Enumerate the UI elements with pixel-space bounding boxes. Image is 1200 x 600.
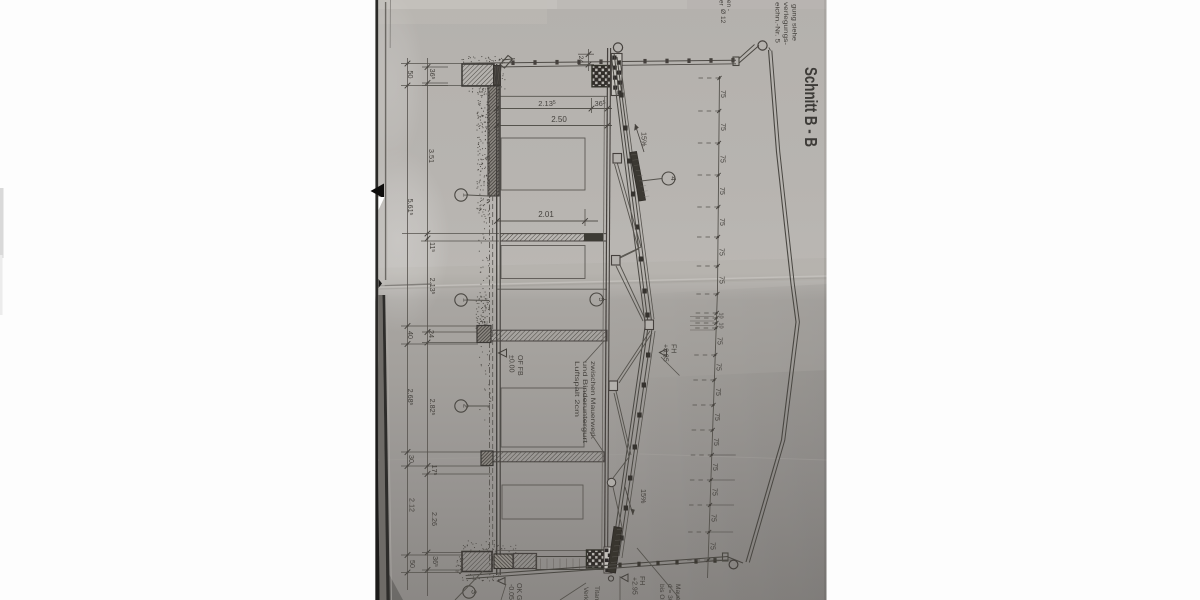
svg-text:75: 75 <box>711 463 718 471</box>
svg-text:-0.05: -0.05 <box>507 584 514 600</box>
svg-text:75: 75 <box>718 218 725 226</box>
svg-text:OF FB: OF FB <box>516 355 523 376</box>
svg-text:verlegungs-: verlegungs- <box>782 2 789 45</box>
svg-text:50: 50 <box>408 560 417 568</box>
svg-text:Luftspalt 2cm: Luftspalt 2cm <box>573 361 580 417</box>
svg-text:und Binderuntergurt: und Binderuntergurt <box>581 361 588 443</box>
svg-text:75: 75 <box>718 187 725 195</box>
svg-text:24: 24 <box>427 330 436 338</box>
svg-text:FH: FH <box>638 576 645 585</box>
svg-text:+3.85: +3.85 <box>662 344 669 362</box>
svg-text:75: 75 <box>718 248 725 256</box>
svg-text:75: 75 <box>719 90 726 98</box>
svg-text:er: er <box>718 0 725 7</box>
svg-text:3: 3 <box>469 590 478 594</box>
svg-text:75: 75 <box>717 276 724 284</box>
svg-text:Schnitt B - B: Schnitt B - B <box>801 67 821 147</box>
svg-text:±0.00: ±0.00 <box>508 355 515 373</box>
svg-text:Verkl: Verkl <box>582 587 589 600</box>
svg-text:75: 75 <box>719 155 726 163</box>
svg-text:2.50: 2.50 <box>551 115 567 124</box>
svg-text:40: 40 <box>406 331 415 339</box>
svg-text:75: 75 <box>714 388 721 396</box>
svg-text:15%: 15% <box>640 132 649 147</box>
svg-text:bis OK: bis OK <box>658 584 665 600</box>
svg-text:75: 75 <box>709 514 716 522</box>
svg-text:24: 24 <box>577 56 584 64</box>
svg-text:75: 75 <box>719 123 726 131</box>
svg-text:2.26: 2.26 <box>430 512 439 526</box>
svg-text:OK Ge: OK Ge <box>515 583 522 600</box>
svg-text:75: 75 <box>712 438 719 446</box>
svg-text:+2.95: +2.95 <box>631 577 638 595</box>
svg-text:Ø 12: Ø 12 <box>719 9 726 24</box>
svg-text:30: 30 <box>407 455 416 463</box>
svg-text:50: 50 <box>406 71 415 79</box>
svg-text:gung siehe: gung siehe <box>791 4 798 41</box>
svg-text:FH: FH <box>670 344 677 353</box>
svg-text:2.01: 2.01 <box>538 210 554 219</box>
svg-text:75: 75 <box>708 542 715 550</box>
svg-text:eichn.-Nr. 5: eichn.-Nr. 5 <box>774 2 781 43</box>
svg-text:zwischen Mauerwerk: zwischen Mauerwerk <box>589 361 596 440</box>
svg-text:10: 10 <box>717 322 723 328</box>
svg-text:75: 75 <box>715 363 722 371</box>
svg-text:4: 4 <box>669 176 678 180</box>
svg-text:10: 10 <box>718 312 724 318</box>
svg-text:3.51: 3.51 <box>427 149 436 163</box>
svg-text:Titan: Titan <box>593 586 600 600</box>
svg-text:75: 75 <box>716 337 723 345</box>
svg-text:Mauer: Mauer <box>674 584 681 600</box>
svg-text:15%: 15% <box>639 489 648 504</box>
svg-text:75: 75 <box>710 488 717 496</box>
svg-text:75: 75 <box>713 413 720 421</box>
svg-text:2.12: 2.12 <box>408 498 417 512</box>
